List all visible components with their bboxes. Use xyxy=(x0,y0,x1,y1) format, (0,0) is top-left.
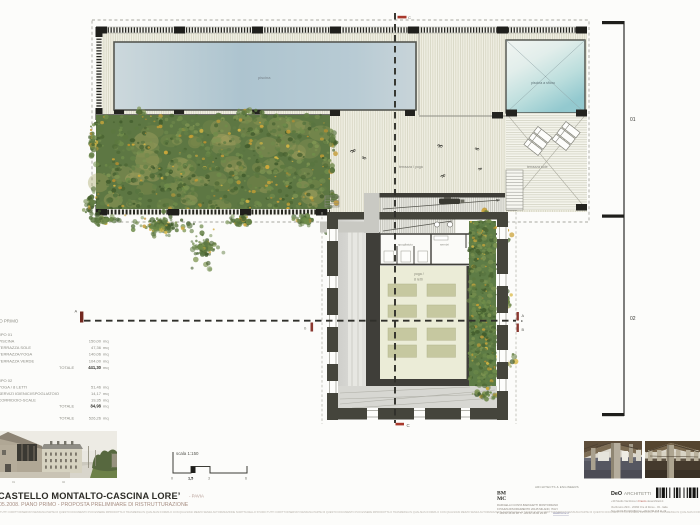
svg-text:9 PIAZZA RISORGIMENTO 20145 MI: 9 PIAZZA RISORGIMENTO 20145 MILANO, ITAL… xyxy=(497,507,558,511)
svg-text:mq: mq xyxy=(103,345,109,350)
svg-text:TOTALE: TOTALE xyxy=(59,365,75,370)
svg-text:140,06: 140,06 xyxy=(89,352,102,357)
svg-text:1,5: 1,5 xyxy=(188,477,193,481)
svg-text:01: 01 xyxy=(12,480,16,484)
svg-text:mq: mq xyxy=(103,339,109,344)
svg-text:01: 01 xyxy=(630,117,636,123)
svg-text:yoga /: yoga / xyxy=(414,272,424,276)
svg-text:ARCHITECTS & ENGINEERS: ARCHITECTS & ENGINEERS xyxy=(535,485,579,489)
svg-text:Tel:+39 02 55 018 650 Fax +39: Tel:+39 02 55 018 650 Fax +39 02 55 018 … xyxy=(611,509,667,513)
svg-text:scala 1:150: scala 1:150 xyxy=(176,451,199,456)
svg-text:6: 6 xyxy=(245,477,247,481)
svg-text:- PAVIA: - PAVIA xyxy=(189,494,204,499)
svg-text:02: 02 xyxy=(630,316,636,322)
svg-text:TUTTI I DIRITTI RISERVATI NES: TUTTI I DIRITTI RISERVATI NESSUNA PARTE … xyxy=(0,510,700,514)
svg-text:05.2008. PIANO PRIMO - PROPO: 05.2008. PIANO PRIMO - PROPOSTA PRELIMIN… xyxy=(0,502,189,508)
svg-text:mq: mq xyxy=(103,416,109,421)
svg-text:terrazza / yoga: terrazza / yoga xyxy=(399,165,423,169)
svg-text:terrazza sole: terrazza sole xyxy=(527,165,548,169)
svg-text:C: C xyxy=(407,423,410,428)
svg-text:-TERRAZZA/YOGA: -TERRAZZA/YOGA xyxy=(0,352,32,357)
svg-text:51,46: 51,46 xyxy=(91,385,102,390)
svg-text:mq: mq xyxy=(103,404,109,409)
svg-text:Via Rovino 29/C - 20090 Ore di: Via Rovino 29/C - 20090 Ore di Rome - 03… xyxy=(611,505,668,509)
svg-text:DeO: DeO xyxy=(611,491,622,497)
svg-text:104,00: 104,00 xyxy=(89,358,102,363)
svg-text:RAFFAELLO COSTA BARCHETTI MONT: RAFFAELLO COSTA BARCHETTI MONTORFANO xyxy=(497,503,558,507)
svg-text:441,30: 441,30 xyxy=(88,365,101,370)
svg-text:www.bmmc.it: www.bmmc.it xyxy=(553,511,569,515)
svg-text:MC: MC xyxy=(497,496,506,502)
svg-text:+39 Studio Via Roma 1 Franco d: +39 Studio Via Roma 1 Franco deoarchitet… xyxy=(611,499,664,503)
svg-text:3: 3 xyxy=(208,477,210,481)
svg-text:TOTALE: TOTALE xyxy=(59,404,75,409)
svg-text:servizi: servizi xyxy=(440,243,449,247)
svg-text:CORPO 01: CORPO 01 xyxy=(0,332,13,337)
svg-text:-TERRAZZA SOLE: -TERRAZZA SOLE xyxy=(0,345,31,350)
svg-text:-CORRIDOIO-SCALE: -CORRIDOIO-SCALE xyxy=(0,398,36,403)
svg-text:19,35: 19,35 xyxy=(91,398,102,403)
svg-text:02: 02 xyxy=(62,480,66,484)
svg-text:A: A xyxy=(522,314,525,318)
svg-text:B: B xyxy=(522,328,525,332)
svg-text:PIANO PRIMO: PIANO PRIMO xyxy=(0,319,19,324)
svg-text:TOTALE: TOTALE xyxy=(59,416,75,421)
svg-text:mq: mq xyxy=(103,352,109,357)
svg-text:piscina: piscina xyxy=(258,75,271,80)
svg-text:CASTELLO MONTALTO-CASCINA LORE: CASTELLO MONTALTO-CASCINA LORE’ xyxy=(0,491,180,501)
svg-text:ARCHITETTI: ARCHITETTI xyxy=(624,491,651,496)
svg-text:47,36: 47,36 xyxy=(91,345,102,350)
svg-text:mq: mq xyxy=(103,385,109,390)
svg-text:-YOGA / 8 LETTI: -YOGA / 8 LETTI xyxy=(0,385,27,390)
svg-text:-SERVIZI IGIENICI/SPOGLIATOIO: -SERVIZI IGIENICI/SPOGLIATOIO xyxy=(0,391,59,396)
svg-text:0: 0 xyxy=(171,477,173,481)
svg-text:526,26: 526,26 xyxy=(89,416,102,421)
svg-text:C: C xyxy=(408,15,411,20)
svg-text:mq: mq xyxy=(103,365,109,370)
svg-text:spogliatoio: spogliatoio xyxy=(398,243,413,247)
svg-text:150,00: 150,00 xyxy=(89,339,102,344)
svg-text:8 letti: 8 letti xyxy=(414,278,423,282)
svg-text:mq: mq xyxy=(103,398,109,403)
svg-text:mq: mq xyxy=(103,391,109,396)
svg-text:-TERRAZZA VERDE: -TERRAZZA VERDE xyxy=(0,358,34,363)
svg-text:piscina a sfioro: piscina a sfioro xyxy=(531,81,555,85)
svg-text:-PISCINA: -PISCINA xyxy=(0,339,15,344)
svg-text:A: A xyxy=(75,309,78,314)
svg-text:84,98: 84,98 xyxy=(91,404,102,409)
svg-text:CORPO 02: CORPO 02 xyxy=(0,378,13,383)
svg-text:T +39 02 48 00 48 77 +39 02 4: T +39 02 48 00 48 77 +39 02 48 00 29 20 xyxy=(497,511,547,515)
svg-text:mq: mq xyxy=(103,358,109,363)
svg-text:14,17: 14,17 xyxy=(91,391,102,396)
svg-text:B: B xyxy=(304,327,307,331)
